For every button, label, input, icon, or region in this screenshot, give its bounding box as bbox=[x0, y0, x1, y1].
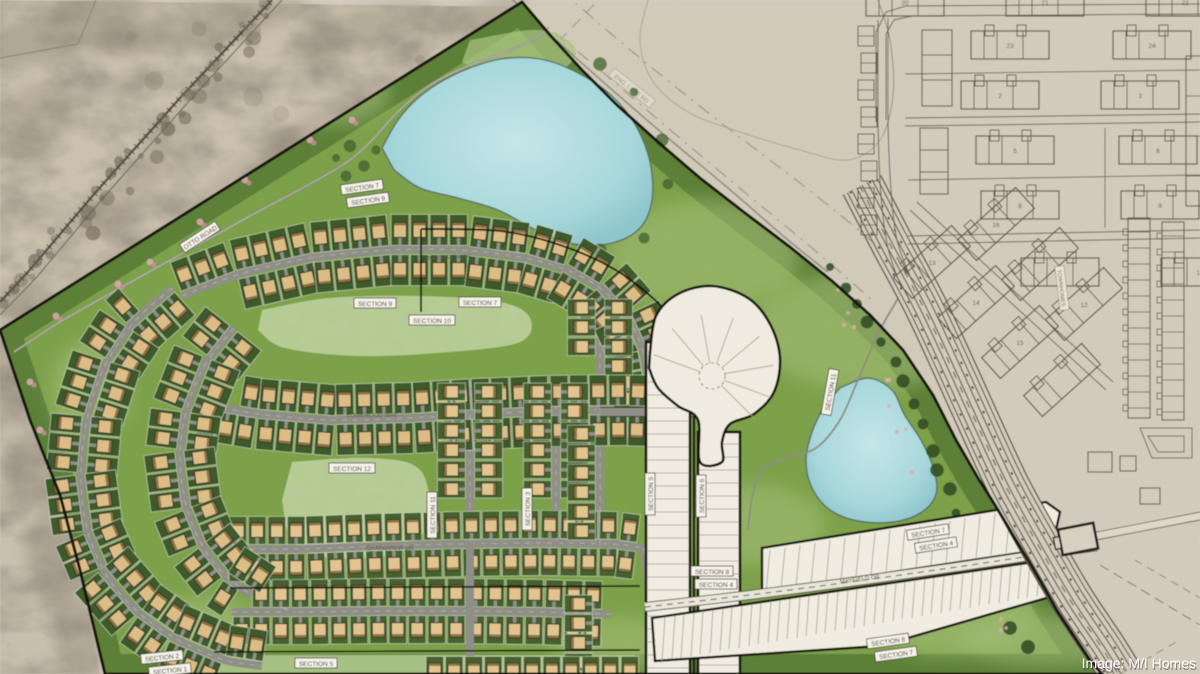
svg-text:SECTION 8: SECTION 8 bbox=[695, 569, 730, 576]
svg-text:SECTION 9: SECTION 9 bbox=[358, 301, 393, 308]
svg-text:SECTION 4: SECTION 4 bbox=[699, 582, 734, 589]
svg-text:20: 20 bbox=[901, 0, 909, 7]
svg-text:GRANDVIEW DR: GRANDVIEW DR bbox=[366, 546, 414, 552]
svg-text:SECTION 3: SECTION 3 bbox=[525, 491, 532, 526]
svg-text:SECTION 5: SECTION 5 bbox=[299, 661, 334, 668]
svg-text:5: 5 bbox=[1013, 148, 1017, 155]
svg-text:8: 8 bbox=[1018, 203, 1022, 210]
svg-text:6: 6 bbox=[1156, 148, 1160, 155]
svg-text:12: 12 bbox=[1080, 302, 1088, 309]
svg-text:23: 23 bbox=[1006, 43, 1014, 50]
svg-text:9: 9 bbox=[1158, 203, 1162, 210]
svg-text:Image: M/I Homes: Image: M/I Homes bbox=[1082, 655, 1196, 671]
svg-text:13: 13 bbox=[928, 260, 936, 267]
svg-text:SECTION 6: SECTION 6 bbox=[699, 478, 706, 513]
svg-text:EDGEWOOD WAY: EDGEWOOD WAY bbox=[347, 413, 398, 419]
svg-text:SECTION 10: SECTION 10 bbox=[413, 318, 451, 325]
svg-text:16: 16 bbox=[992, 222, 1000, 229]
svg-text:SECTION 11: SECTION 11 bbox=[430, 496, 437, 534]
svg-text:24: 24 bbox=[1148, 43, 1156, 50]
svg-text:SECTION 7: SECTION 7 bbox=[463, 300, 498, 307]
svg-text:15: 15 bbox=[1016, 340, 1024, 347]
svg-text:14: 14 bbox=[972, 300, 980, 307]
svg-text:3: 3 bbox=[1138, 93, 1142, 100]
svg-text:SECTION 5: SECTION 5 bbox=[648, 476, 655, 511]
svg-text:22: 22 bbox=[1181, 0, 1189, 7]
svg-text:21: 21 bbox=[1041, 0, 1049, 7]
svg-text:2: 2 bbox=[998, 93, 1002, 100]
svg-text:12: 12 bbox=[1196, 270, 1200, 277]
svg-text:SECTION 12: SECTION 12 bbox=[333, 466, 371, 473]
